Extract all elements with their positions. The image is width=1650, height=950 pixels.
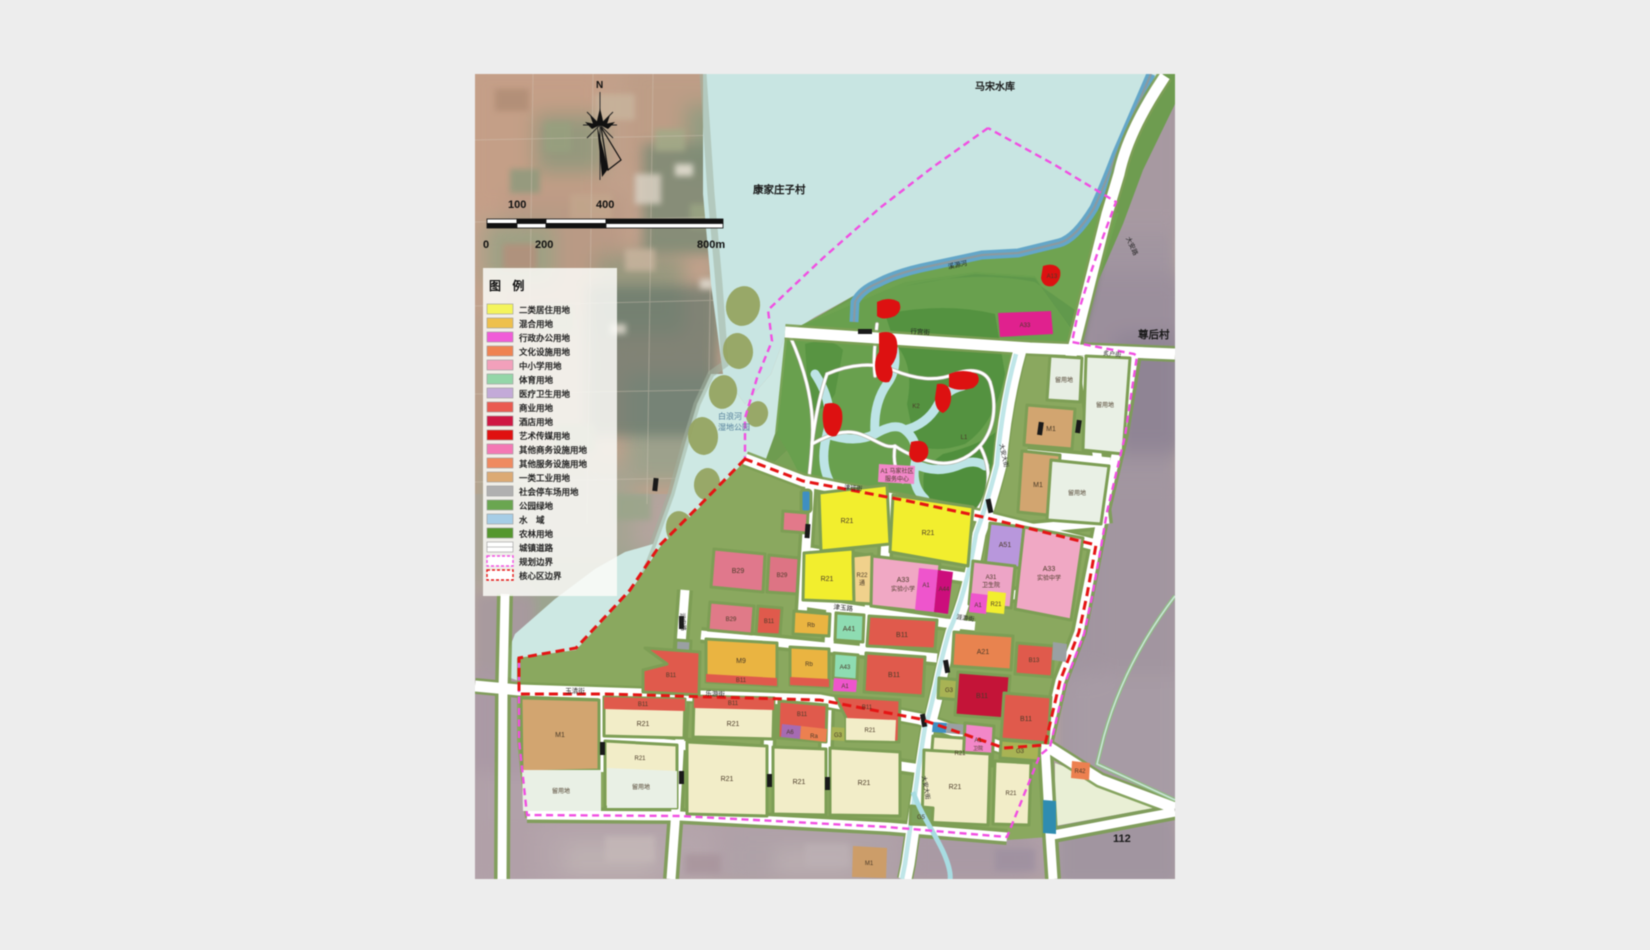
svg-text:B11: B11 xyxy=(896,632,908,639)
svg-text:商业用地: 商业用地 xyxy=(519,403,554,413)
svg-text:0: 0 xyxy=(483,239,489,251)
svg-text:留用地: 留用地 xyxy=(552,787,570,795)
svg-text:A1 马家社区: A1 马家社区 xyxy=(880,467,913,475)
svg-text:R42: R42 xyxy=(1074,769,1086,775)
svg-text:A1: A1 xyxy=(974,738,982,744)
svg-text:B29: B29 xyxy=(726,617,737,623)
svg-text:K2: K2 xyxy=(912,404,920,410)
svg-text:R21: R21 xyxy=(637,721,650,728)
svg-text:A1: A1 xyxy=(841,684,849,690)
svg-text:B11: B11 xyxy=(764,619,775,625)
svg-text:Rb: Rb xyxy=(807,623,815,629)
svg-text:B11: B11 xyxy=(736,678,747,684)
svg-text:B29: B29 xyxy=(777,573,788,579)
svg-text:A51: A51 xyxy=(999,542,1012,549)
svg-text:B29: B29 xyxy=(732,568,745,575)
svg-text:G3: G3 xyxy=(834,733,843,739)
svg-text:A1: A1 xyxy=(922,583,930,589)
svg-text:A44: A44 xyxy=(939,587,950,593)
svg-text:G5: G5 xyxy=(917,815,926,821)
svg-text:A13: A13 xyxy=(1047,274,1058,280)
svg-text:R21: R21 xyxy=(841,518,854,525)
svg-text:R22: R22 xyxy=(856,573,868,579)
svg-text:A33: A33 xyxy=(1043,566,1056,573)
svg-text:行政办公用地: 行政办公用地 xyxy=(518,333,571,343)
svg-text:二类居住用地: 二类居住用地 xyxy=(519,305,571,315)
svg-text:文化设施用地: 文化设施用地 xyxy=(519,347,571,357)
svg-text:公园绿地: 公园绿地 xyxy=(519,501,554,511)
svg-text:图 例: 图 例 xyxy=(489,278,528,293)
svg-text:R21: R21 xyxy=(922,530,935,537)
svg-text:B11: B11 xyxy=(862,705,873,711)
svg-text:留用地: 留用地 xyxy=(1055,376,1073,384)
svg-text:B11: B11 xyxy=(1020,716,1032,723)
svg-text:M1: M1 xyxy=(555,732,565,739)
svg-text:200: 200 xyxy=(535,239,553,251)
svg-text:R21: R21 xyxy=(949,784,962,791)
svg-text:B11: B11 xyxy=(666,673,677,679)
svg-text:G3: G3 xyxy=(1016,749,1025,755)
svg-text:玉清街: 玉清街 xyxy=(565,686,585,695)
svg-text:规划边界: 规划边界 xyxy=(519,557,554,567)
svg-text:N: N xyxy=(596,80,603,91)
svg-text:其他服务设施用地: 其他服务设施用地 xyxy=(519,459,588,469)
svg-text:R21: R21 xyxy=(721,776,734,783)
svg-text:G3: G3 xyxy=(945,688,954,694)
svg-text:社会停车场用地: 社会停车场用地 xyxy=(518,487,579,497)
svg-text:农林用地: 农林用地 xyxy=(518,529,554,539)
svg-text:城镇道路: 城镇道路 xyxy=(519,543,554,553)
svg-text:留用地: 留用地 xyxy=(1068,489,1086,497)
svg-text:112: 112 xyxy=(1113,833,1131,845)
svg-text:A6: A6 xyxy=(786,730,794,736)
svg-text:A1: A1 xyxy=(974,603,982,609)
svg-text:B11: B11 xyxy=(728,701,739,707)
svg-text:B11: B11 xyxy=(797,712,808,718)
svg-text:湿地公园: 湿地公园 xyxy=(718,422,750,432)
svg-text:M1: M1 xyxy=(1033,482,1043,489)
svg-text:白浪河: 白浪河 xyxy=(718,411,742,421)
svg-text:100: 100 xyxy=(508,199,526,211)
svg-text:留用地: 留用地 xyxy=(632,783,650,791)
svg-text:其他商务设施用地: 其他商务设施用地 xyxy=(519,445,588,455)
svg-text:B13: B13 xyxy=(1029,658,1040,664)
svg-text:卫院: 卫院 xyxy=(973,745,983,752)
svg-text:康家庄子村: 康家庄子村 xyxy=(753,183,806,196)
svg-text:一类工业用地: 一类工业用地 xyxy=(519,473,571,483)
svg-text:R21: R21 xyxy=(821,576,834,583)
svg-text:R21: R21 xyxy=(990,602,1002,608)
svg-text:R21: R21 xyxy=(954,751,966,757)
svg-text:A43: A43 xyxy=(840,665,851,671)
svg-text:马宋水库: 马宋水库 xyxy=(975,80,1015,93)
svg-text:体育用地: 体育用地 xyxy=(519,375,554,385)
svg-text:R21: R21 xyxy=(634,756,646,762)
svg-text:混合用地: 混合用地 xyxy=(519,319,554,329)
svg-text:中小学用地: 中小学用地 xyxy=(519,361,562,371)
svg-text:服务中心: 服务中心 xyxy=(885,475,909,483)
svg-text:卫生院: 卫生院 xyxy=(982,581,1000,589)
svg-text:实验中学: 实验中学 xyxy=(1037,574,1061,582)
svg-text:医疗卫生用地: 医疗卫生用地 xyxy=(519,389,571,399)
svg-text:Rb: Rb xyxy=(805,662,813,668)
svg-text:R21: R21 xyxy=(858,780,871,787)
svg-text:M1: M1 xyxy=(865,861,874,867)
svg-text:M9: M9 xyxy=(736,658,746,665)
svg-text:A21: A21 xyxy=(977,649,990,656)
svg-text:留用地: 留用地 xyxy=(1096,401,1114,409)
svg-text:R21: R21 xyxy=(1005,791,1017,797)
svg-text:水 域: 水 域 xyxy=(518,515,545,525)
svg-text:A33: A33 xyxy=(897,577,910,584)
svg-text:B11: B11 xyxy=(888,672,900,679)
svg-text:800m: 800m xyxy=(697,239,725,251)
svg-text:核心区边界: 核心区边界 xyxy=(519,571,562,581)
svg-text:R21: R21 xyxy=(793,779,806,786)
svg-text:M1: M1 xyxy=(1046,426,1056,433)
svg-text:400: 400 xyxy=(596,199,614,211)
svg-text:尊后村: 尊后村 xyxy=(1138,328,1170,341)
svg-text:A31: A31 xyxy=(986,575,997,581)
svg-text:酒店用地: 酒店用地 xyxy=(519,417,554,427)
svg-text:艺术传媒用地: 艺术传媒用地 xyxy=(519,431,571,441)
svg-text:B11: B11 xyxy=(638,702,649,708)
svg-text:R21: R21 xyxy=(864,728,876,734)
svg-text:B11: B11 xyxy=(976,693,988,700)
svg-text:A33: A33 xyxy=(1020,323,1031,329)
svg-text:L1: L1 xyxy=(961,435,968,441)
svg-text:实验小学: 实验小学 xyxy=(891,585,915,593)
svg-text:A41: A41 xyxy=(843,626,856,633)
svg-text:通: 通 xyxy=(859,579,865,587)
svg-text:Ra: Ra xyxy=(810,734,818,740)
svg-text:R21: R21 xyxy=(727,721,740,728)
